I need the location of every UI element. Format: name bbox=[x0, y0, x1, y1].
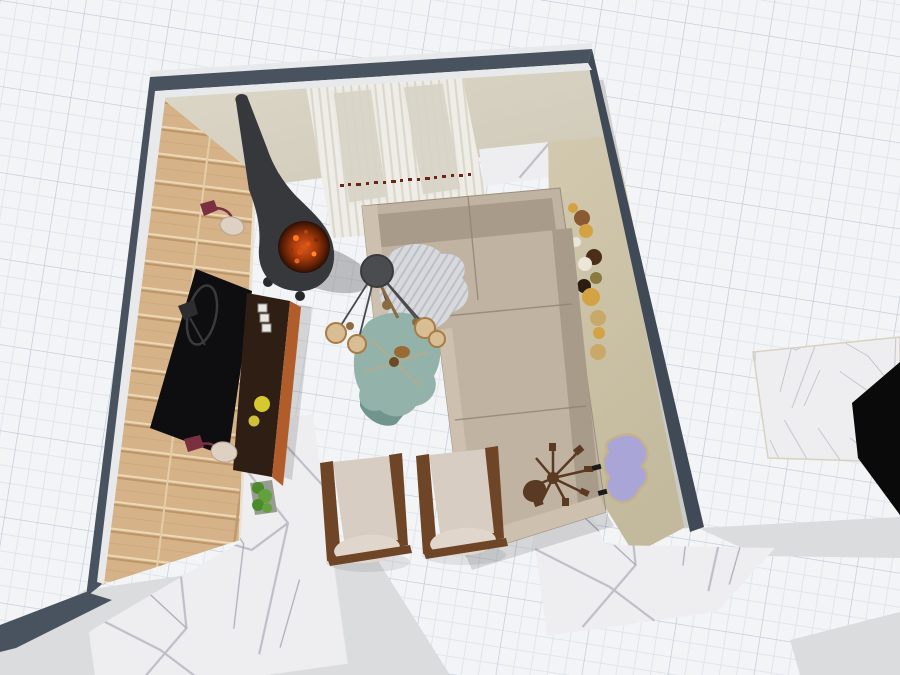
armchair-right[interactable] bbox=[416, 446, 508, 565]
wall-plate[interactable] bbox=[590, 310, 606, 326]
chandelier-bulb bbox=[429, 331, 445, 347]
wall-plate[interactable] bbox=[579, 224, 593, 238]
chandelier-bulb bbox=[326, 323, 346, 343]
fireplace-fire bbox=[278, 221, 330, 273]
wall-plate[interactable] bbox=[590, 272, 602, 284]
wall-plate[interactable] bbox=[590, 344, 606, 360]
wall-plate[interactable] bbox=[574, 210, 590, 226]
armchair-left[interactable] bbox=[320, 453, 412, 572]
wall-plate[interactable] bbox=[582, 288, 600, 306]
floor-lamp-shade[interactable] bbox=[361, 255, 393, 287]
wall-plate[interactable] bbox=[578, 257, 592, 271]
wall-plate[interactable] bbox=[568, 203, 578, 213]
wall-plate[interactable] bbox=[593, 327, 605, 339]
floorplan-3d-canvas[interactable] bbox=[0, 0, 900, 675]
chandelier-bulb bbox=[348, 335, 366, 353]
